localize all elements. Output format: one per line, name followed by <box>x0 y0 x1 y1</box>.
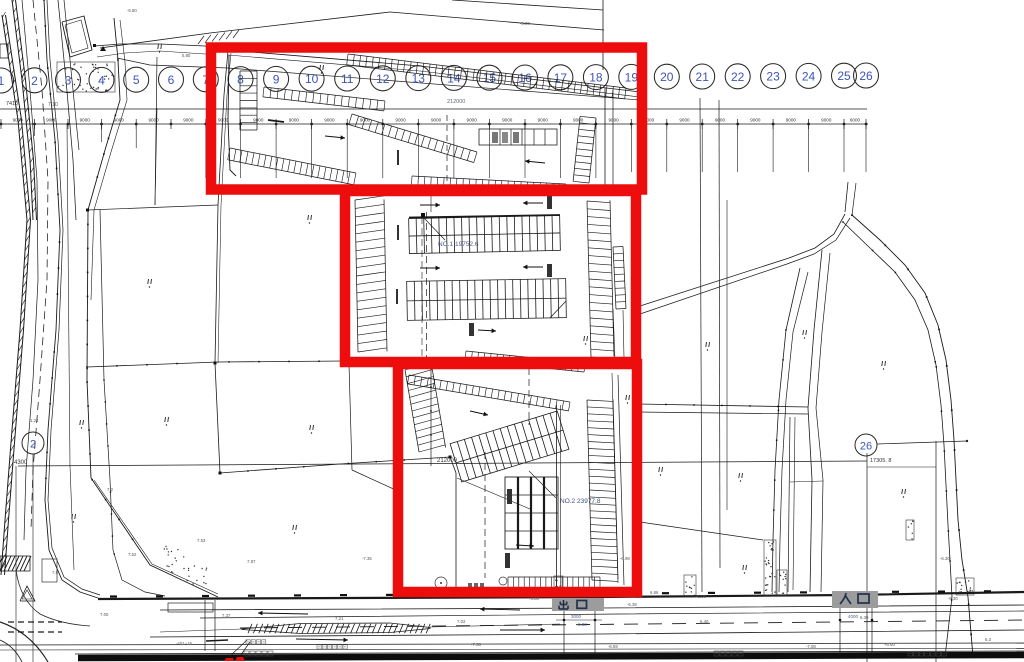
svg-text:9000: 9000 <box>821 118 832 123</box>
svg-text:8: 8 <box>237 73 244 87</box>
svg-text:9000: 9000 <box>13 118 24 123</box>
svg-text:9000: 9000 <box>253 118 264 123</box>
svg-text:-7.08: -7.08 <box>806 644 816 649</box>
svg-text:9000: 9000 <box>750 118 761 123</box>
svg-text:-6.38: -6.38 <box>627 602 637 607</box>
svg-text:7.21: 7.21 <box>335 616 344 621</box>
svg-text:6.86: 6.86 <box>650 590 659 595</box>
svg-text:7410: 7410 <box>6 101 18 107</box>
svg-text:3000: 3000 <box>571 614 582 619</box>
svg-text:NO.1 19752.6: NO.1 19752.6 <box>438 241 479 248</box>
svg-text:7.2: 7.2 <box>107 487 114 492</box>
svg-text:2: 2 <box>31 74 38 88</box>
svg-text:11: 11 <box>341 72 354 86</box>
svg-text:9000: 9000 <box>183 118 194 123</box>
svg-text:23: 23 <box>766 70 780 84</box>
svg-text:6.03: 6.03 <box>578 622 587 627</box>
svg-text:7.52: 7.52 <box>128 552 137 557</box>
svg-text:+7.38: +7.38 <box>470 642 481 647</box>
svg-text:1: 1 <box>0 74 5 88</box>
svg-text:-6.59: -6.59 <box>608 644 618 649</box>
svg-text:9000: 9000 <box>80 118 91 123</box>
svg-text:26: 26 <box>860 441 872 453</box>
svg-text:+6.60: +6.60 <box>884 642 895 647</box>
svg-text:9000: 9000 <box>502 118 513 123</box>
svg-text:7.10: 7.10 <box>48 102 58 108</box>
svg-text:5: 5 <box>133 73 140 87</box>
svg-text:6.30: 6.30 <box>860 615 869 620</box>
svg-text:4: 4 <box>98 73 105 87</box>
svg-text:26: 26 <box>859 69 873 83</box>
svg-text:-451=15: -451=15 <box>176 641 192 646</box>
svg-text:+6.08: +6.08 <box>695 594 706 599</box>
svg-text:17305. 8: 17305. 8 <box>870 458 891 464</box>
svg-text:9000: 9000 <box>395 118 406 123</box>
svg-text:212000: 212000 <box>447 99 465 105</box>
svg-text:9000: 9000 <box>114 118 125 123</box>
svg-text:9: 9 <box>273 72 280 86</box>
svg-text:7.53: 7.53 <box>197 538 206 543</box>
svg-text:21: 21 <box>696 70 710 84</box>
svg-text:9000: 9000 <box>467 118 478 123</box>
svg-text:22: 22 <box>731 70 745 84</box>
svg-text:5.80: 5.80 <box>182 53 191 58</box>
svg-text:9000: 9000 <box>218 118 229 123</box>
svg-text:9000: 9000 <box>149 118 160 123</box>
svg-text:9000: 9000 <box>538 118 549 123</box>
svg-text:6: 6 <box>168 73 175 87</box>
svg-text:9000: 9000 <box>679 118 690 123</box>
svg-text:12: 12 <box>376 72 390 86</box>
svg-text:7.37: 7.37 <box>222 613 231 618</box>
svg-text:19: 19 <box>625 70 639 84</box>
svg-text:-6.98: -6.98 <box>620 556 630 561</box>
svg-text:9000: 9000 <box>608 118 619 123</box>
svg-text:20: 20 <box>660 70 674 84</box>
svg-text:9000: 9000 <box>715 118 726 123</box>
svg-text:24: 24 <box>802 69 816 83</box>
svg-text:-5.80: -5.80 <box>127 8 137 13</box>
svg-text:9000: 9000 <box>786 118 797 123</box>
svg-text:18: 18 <box>589 71 603 85</box>
svg-text:3: 3 <box>65 74 72 88</box>
svg-text:1.24: 1.24 <box>30 418 39 423</box>
svg-text:7.5: 7.5 <box>52 570 59 575</box>
svg-text:9000: 9000 <box>324 118 335 123</box>
svg-text:4000: 4000 <box>848 614 859 619</box>
svg-text:4300: 4300 <box>14 460 28 466</box>
svg-text:-7.35: -7.35 <box>362 556 372 561</box>
svg-text:2: 2 <box>30 439 36 451</box>
svg-text:-6.30: -6.30 <box>940 556 950 561</box>
svg-text:7.02: 7.02 <box>457 619 466 624</box>
svg-text:-6.30: -6.30 <box>948 596 958 601</box>
svg-text:-5.80: -5.80 <box>520 21 530 26</box>
svg-text:6.40: 6.40 <box>700 619 709 624</box>
svg-text:9000: 9000 <box>46 118 57 123</box>
svg-text:7.87: 7.87 <box>247 559 256 564</box>
svg-text:9000: 9000 <box>573 118 584 123</box>
svg-text:10: 10 <box>305 72 319 86</box>
svg-text:212000: 212000 <box>437 458 458 464</box>
svg-text:9000: 9000 <box>431 118 442 123</box>
svg-text:9000: 9000 <box>289 118 300 123</box>
svg-text:6000: 6000 <box>850 118 861 123</box>
svg-text:7.00: 7.00 <box>100 612 109 617</box>
svg-text:6.3: 6.3 <box>985 637 992 642</box>
svg-text:25: 25 <box>837 69 851 83</box>
